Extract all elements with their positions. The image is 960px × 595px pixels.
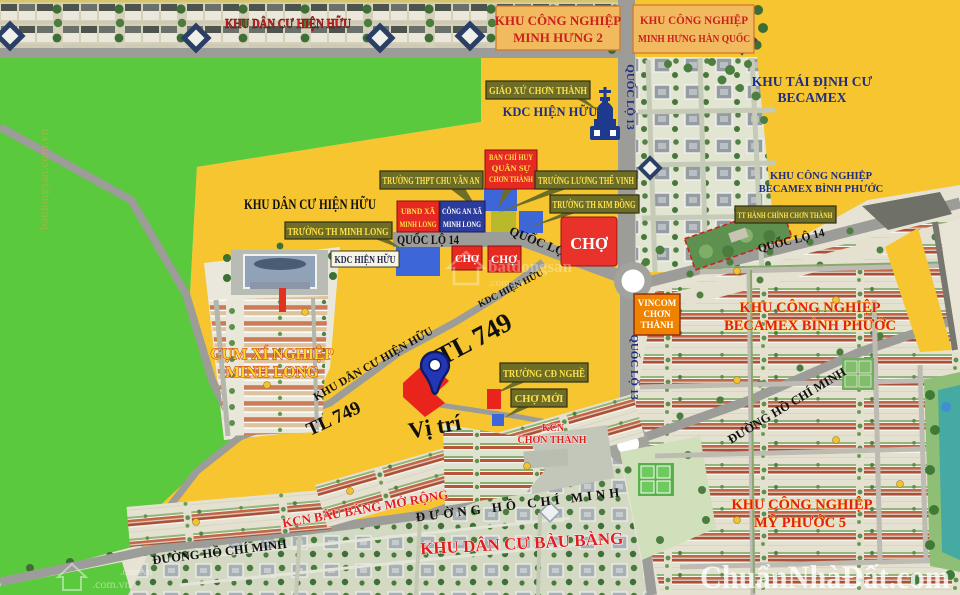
svg-text:batdongsan.com.vn: batdongsan.com.vn	[36, 128, 51, 230]
svg-text:BECAMEX: BECAMEX	[777, 90, 846, 105]
svg-text:ChuẩnNhàĐất.com: ChuẩnNhàĐất.com	[700, 560, 950, 595]
svg-text:TRƯỜNG TH KIM ĐỒNG: TRƯỜNG TH KIM ĐỒNG	[553, 198, 636, 211]
svg-text:.com.vn: .com.vn	[488, 277, 524, 289]
svg-text:BECAMEX BÌNH PHƯỚC: BECAMEX BÌNH PHƯỚC	[759, 183, 883, 195]
svg-text:VINCOM: VINCOM	[638, 298, 677, 308]
svg-text:batdongsan: batdongsan	[488, 257, 573, 276]
svg-text:QUỐC LỘ 14: QUỐC LỘ 14	[397, 232, 460, 247]
svg-text:CHƠN THÀNH: CHƠN THÀNH	[518, 434, 587, 446]
svg-text:.com.vn: .com.vn	[120, 567, 152, 578]
svg-text:TRƯỜNG CĐ NGHỀ: TRƯỜNG CĐ NGHỀ	[503, 367, 585, 380]
svg-text:QUỐC LỘ 13: QUỐC LỘ 13	[624, 64, 637, 130]
svg-text:.com.vn: .com.vn	[92, 577, 131, 591]
svg-text:UBND XÃ: UBND XÃ	[401, 206, 436, 216]
svg-text:CHƠN THÀNH: CHƠN THÀNH	[489, 174, 533, 184]
svg-text:TT HÀNH CHÍNH CHƠN THÀNH: TT HÀNH CHÍNH CHƠN THÀNH	[738, 210, 833, 220]
svg-text:KHU CÔNG NGHIỆP: KHU CÔNG NGHIỆP	[495, 13, 621, 28]
svg-text:QUỐC LỘ 13: QUỐC LỘ 13	[628, 334, 641, 400]
svg-text:KHU CÔNG NGHIỆP: KHU CÔNG NGHIỆP	[770, 169, 873, 182]
svg-text:MINH LONG: MINH LONG	[400, 219, 437, 229]
svg-text:KHU CÔNG NGHIỆP: KHU CÔNG NGHIỆP	[640, 13, 748, 27]
svg-text:MINH LONG: MINH LONG	[225, 364, 318, 381]
svg-text:KHU CÔNG NGHIỆP: KHU CÔNG NGHIỆP	[740, 299, 881, 316]
svg-text:CHỢ MỚI: CHỢ MỚI	[515, 393, 564, 405]
svg-text:QUÂN SỰ: QUÂN SỰ	[492, 163, 531, 173]
svg-text:KCN: KCN	[542, 423, 565, 434]
svg-text:MỸ PHƯỚC 5: MỸ PHƯỚC 5	[754, 513, 846, 531]
svg-text:TRƯỜNG THPT CHU VĂN AN: TRƯỜNG THPT CHU VĂN AN	[383, 175, 481, 187]
svg-text:CHỢ: CHỢ	[570, 234, 609, 253]
svg-text:MINH HƯNG HÀN QUỐC: MINH HƯNG HÀN QUỐC	[638, 32, 750, 45]
svg-text:THÀNH: THÀNH	[640, 320, 673, 330]
svg-text:CỤM XÍ NGHIỆP: CỤM XÍ NGHIỆP	[210, 346, 334, 363]
svg-text:TRƯỜNG LƯƠNG THẾ VINH: TRƯỜNG LƯƠNG THẾ VINH	[538, 174, 634, 187]
svg-text:KHU TÁI ĐỊNH CƯ: KHU TÁI ĐỊNH CƯ	[752, 74, 873, 89]
svg-text:CÔNG AN XÃ: CÔNG AN XÃ	[442, 206, 483, 216]
svg-text:BECAMEX BÌNH PHƯỚC: BECAMEX BÌNH PHƯỚC	[724, 317, 896, 334]
svg-text:KHU DÂN CƯ HIỆN HỮU: KHU DÂN CƯ HIỆN HỮU	[244, 195, 376, 213]
svg-text:MINH HƯNG 2: MINH HƯNG 2	[513, 30, 603, 45]
svg-text:GIÁO XỨ CHƠN THÀNH: GIÁO XỨ CHƠN THÀNH	[489, 85, 587, 97]
svg-text:KDC HIỆN HỮU: KDC HIỆN HỮU	[503, 105, 598, 119]
svg-text:KDC HIỆN HỮU: KDC HIỆN HỮU	[335, 253, 396, 266]
svg-text:KHU DÂN CƯ HIỆN HỮU: KHU DÂN CƯ HIỆN HỮU	[225, 14, 351, 32]
svg-text:BAN CHỈ HUY: BAN CHỈ HUY	[489, 152, 533, 162]
svg-text:KHU CÔNG NGHIỆP: KHU CÔNG NGHIỆP	[732, 496, 873, 513]
svg-text:CHƠN: CHƠN	[644, 309, 672, 319]
svg-text:MINH LONG: MINH LONG	[443, 219, 481, 229]
svg-text:TRƯỜNG TH MINH LONG: TRƯỜNG TH MINH LONG	[288, 226, 389, 238]
